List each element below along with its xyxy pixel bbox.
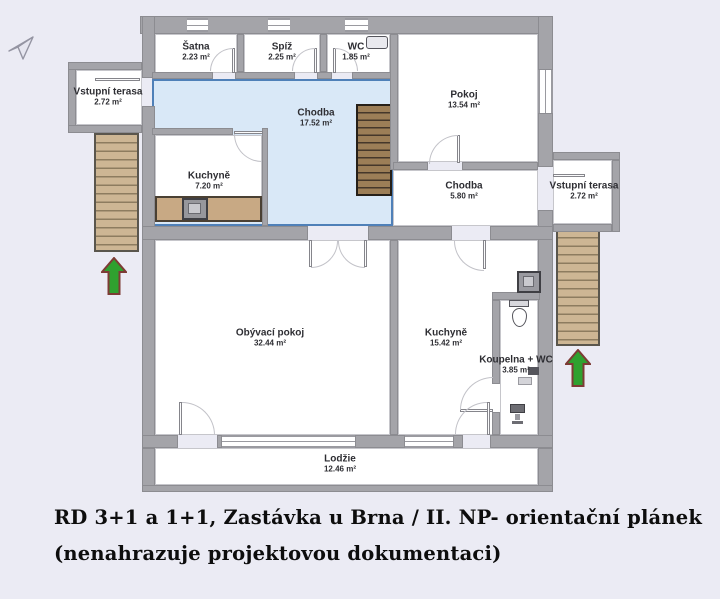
window-pokoj-right <box>538 70 553 113</box>
room-name: Obývací pokoj <box>236 328 304 339</box>
wall-toprooms-seg <box>235 72 295 79</box>
wall-pokoj-bottom-seg <box>462 162 538 170</box>
toilet-tank-icon <box>509 300 529 307</box>
room-area: 2.25 m² <box>268 53 296 63</box>
wall-kuchyne-mala-right <box>262 128 268 226</box>
window-kuchyne-lodzie <box>405 435 453 448</box>
wall-spiz-wc <box>320 34 327 72</box>
label-terasa-leva: Vstupní terasa 2.72 m² <box>74 87 143 108</box>
label-terasa-prava: Vstupní terasa 2.72 m² <box>550 181 619 202</box>
stove-icon-inner <box>188 203 201 214</box>
north-arrow-icon <box>6 34 36 62</box>
wall-left-upper <box>142 16 155 78</box>
wall-terasa-prava-top <box>553 152 620 160</box>
plan-caption: RD 3+1 a 1+1, Zastávka u Brna / II. NP- … <box>54 500 702 572</box>
wall-pokoj-left <box>390 34 398 170</box>
wall-toprooms-seg <box>152 72 213 79</box>
room-area: 32.44 m² <box>236 339 304 349</box>
room-name: Vstupní terasa <box>74 87 143 98</box>
caption-line-1: RD 3+1 a 1+1, Zastávka u Brna / II. NP- … <box>54 500 702 536</box>
label-chodba-dolni: Chodba 5.80 m² <box>445 181 482 202</box>
label-chodba-horni: Chodba 17.52 m² <box>297 108 334 129</box>
entrance-arrow-left-icon <box>101 257 127 295</box>
room-area: 2.23 m² <box>182 53 210 63</box>
window-obyvaci-lodzie <box>222 435 355 448</box>
wall-satna-spiz <box>237 34 244 72</box>
room-name: Vstupní terasa <box>550 181 619 192</box>
wall-middle-seg <box>142 226 308 240</box>
floorplan-canvas: Šatna 2.23 m² Spíž 2.25 m² WC 1.85 m² Po… <box>0 0 720 599</box>
room-name: Šatna <box>182 42 210 53</box>
stairs-interior <box>356 104 392 196</box>
door-leaf-entrance-left <box>95 78 140 81</box>
wall-right-2 <box>538 113 553 167</box>
window-top-satna <box>187 18 208 32</box>
room-name: WC <box>342 42 370 53</box>
label-obyvaci-pokoj: Obývací pokoj 32.44 m² <box>236 328 304 349</box>
wall-terasa-leva-top <box>68 62 142 70</box>
label-kuchyne-mala: Kuchyně 7.20 m² <box>188 171 230 192</box>
washer-icon-inner <box>523 276 534 287</box>
label-lodzie: Lodžie 12.46 m² <box>324 454 356 475</box>
wall-kuchyne-mala-top <box>152 128 233 135</box>
wall-right-1 <box>538 16 553 70</box>
room-area: 7.20 m² <box>188 182 230 192</box>
room-name: Kuchyně <box>425 328 467 339</box>
label-pokoj: Pokoj 13.54 m² <box>448 90 480 111</box>
room-name: Lodžie <box>324 454 356 465</box>
window-top-spiz <box>268 18 290 32</box>
pedestal-sink-icon <box>510 404 525 413</box>
room-area: 3.85 m² <box>479 366 553 376</box>
wall-bottom-seg <box>490 435 553 448</box>
stairs-exterior-left <box>94 133 139 252</box>
room-area: 2.72 m² <box>74 98 143 108</box>
label-koupelna: Koupelna + WC 3.85 m² <box>479 355 553 376</box>
room-name: Spíž <box>268 42 296 53</box>
room-area: 2.72 m² <box>550 192 619 202</box>
room-area: 15.42 m² <box>425 339 467 349</box>
pedestal-sink-stem <box>515 414 520 420</box>
room-area: 13.54 m² <box>448 101 480 111</box>
wall-obyvaci-kuchyne <box>390 240 398 435</box>
caption-line-2: (nenahrazuje projektovou dokumentaci) <box>54 536 702 572</box>
entrance-arrow-right-icon <box>565 349 591 387</box>
radiator-icon-2 <box>518 377 532 385</box>
door-leaf-entrance-right <box>553 174 585 177</box>
wall-right-3 <box>538 210 553 448</box>
wall-koupelna-top <box>492 292 540 300</box>
room-name: Chodba <box>445 181 482 192</box>
window-top-wc <box>345 18 368 32</box>
pedestal-sink-base <box>512 421 523 424</box>
wall-toprooms-seg <box>317 72 332 79</box>
wall-bottom-seg <box>355 435 405 448</box>
room-area: 12.46 m² <box>324 465 356 475</box>
room-area: 17.52 m² <box>297 119 334 129</box>
wall-terasa-leva-bottom <box>68 125 142 133</box>
wall-koupelna-left-seg <box>492 412 500 435</box>
room-area: 5.80 m² <box>445 192 482 202</box>
stairs-exterior-right <box>556 228 600 346</box>
wall-left-lower <box>142 106 155 448</box>
wall-middle-seg <box>490 226 553 240</box>
wall-middle-seg <box>368 226 452 240</box>
wall-pokoj-bottom-seg <box>393 162 428 170</box>
room-name: Chodba <box>297 108 334 119</box>
label-satna: Šatna 2.23 m² <box>182 42 210 63</box>
wall-bottom-seg <box>453 435 463 448</box>
label-kuchyne-velka: Kuchyně 15.42 m² <box>425 328 467 349</box>
wall-terasa-prava-bottom <box>553 224 612 232</box>
room-name: Koupelna + WC <box>479 355 553 366</box>
wall-toprooms-seg <box>352 72 393 79</box>
wall-bottom-seg <box>142 435 178 448</box>
kitchen-counter <box>155 196 262 222</box>
room-name: Kuchyně <box>188 171 230 182</box>
wall-lodzie-bottom <box>142 485 553 492</box>
room-name: Pokoj <box>448 90 480 101</box>
label-wc: WC 1.85 m² <box>342 42 370 63</box>
room-area: 1.85 m² <box>342 53 370 63</box>
label-spiz: Spíž 2.25 m² <box>268 42 296 63</box>
